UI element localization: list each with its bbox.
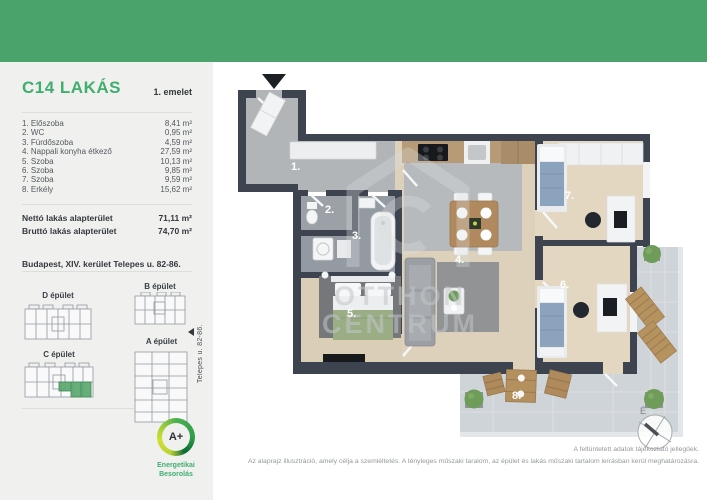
entrance-arrow-icon <box>262 74 286 89</box>
watermark-line1: OTTHON <box>334 281 466 311</box>
divider <box>22 112 192 113</box>
totals: Nettó lakás alapterület71,11 m² Bruttó l… <box>22 212 192 238</box>
sidebar: C14 LAKÁS 1. emelet 1. Előszoba8,41 m² 2… <box>0 62 213 500</box>
floor-plan: OTTHON CENTRUM 1. 2. 3. 4. 5. 6. 7. 8. É <box>213 62 707 500</box>
address: Budapest, XIV. kerület Telepes u. 82-86. <box>22 259 181 269</box>
apartment-title: C14 LAKÁS <box>22 78 121 98</box>
building-d-label: D épület <box>23 291 93 300</box>
room-label-1: 1. <box>291 161 300 173</box>
room-row: 6. Szoba9,85 m² <box>22 166 192 175</box>
room-label-8: 8. <box>512 390 521 402</box>
building-a-diagram <box>133 348 190 424</box>
street-label: Telepes u. 82-86. <box>197 305 204 383</box>
building-b-diagram <box>133 292 187 328</box>
header-bar <box>0 0 707 62</box>
room-label-4: 4. <box>455 254 464 266</box>
room-row: 8. Erkély15,62 m² <box>22 185 192 194</box>
room-label-2: 2. <box>325 204 334 216</box>
room-row: 2. WC0,95 m² <box>22 128 192 137</box>
building-c-diagram <box>23 361 95 403</box>
room-row: 5. Szoba10,13 m² <box>22 157 192 166</box>
room-row: 4. Nappali konyha étkező27,59 m² <box>22 147 192 156</box>
room-row: 1. Előszoba8,41 m² <box>22 119 192 128</box>
room-row: 7. Szoba9,59 m² <box>22 175 192 184</box>
building-a-label: A épület <box>133 337 190 346</box>
room-label-3: 3. <box>352 230 361 242</box>
energy-rating-badge: A+ <box>157 418 195 456</box>
disclaimer-line2: Az alaprajz illusztráció, amely célja a … <box>199 456 699 468</box>
energy-rating-value: A+ <box>169 431 183 443</box>
divider <box>22 204 192 205</box>
disclaimer: A feltüntetett adatok tájékoztató jelleg… <box>199 444 699 467</box>
gross-area-row: Bruttó lakás alapterület74,70 m² <box>22 225 192 238</box>
room-label-7: 7. <box>565 190 574 202</box>
room-row: 3. Fürdőszoba4,59 m² <box>22 138 192 147</box>
compass-north-label: É <box>640 406 646 416</box>
wc-fixtures <box>307 202 318 224</box>
floor-label: 1. emelet <box>153 87 192 97</box>
room-label-5: 5. <box>347 308 356 320</box>
building-d-diagram <box>23 303 93 345</box>
watermark-line2: CENTRUM <box>322 309 478 339</box>
building-b-label: B épület <box>133 282 187 291</box>
divider <box>22 271 192 272</box>
disclaimer-line1: A feltüntetett adatok tájékoztató jelleg… <box>199 444 699 456</box>
divider <box>22 408 134 409</box>
room-label-6: 6. <box>560 279 569 291</box>
street-arrow-icon <box>188 328 194 336</box>
room-list: 1. Előszoba8,41 m² 2. WC0,95 m² 3. Fürdő… <box>22 119 192 194</box>
brochure-page: C14 LAKÁS 1. emelet 1. Előszoba8,41 m² 2… <box>0 0 707 500</box>
building-c-label: C épület <box>23 350 95 359</box>
net-area-row: Nettó lakás alapterület71,11 m² <box>22 212 192 225</box>
